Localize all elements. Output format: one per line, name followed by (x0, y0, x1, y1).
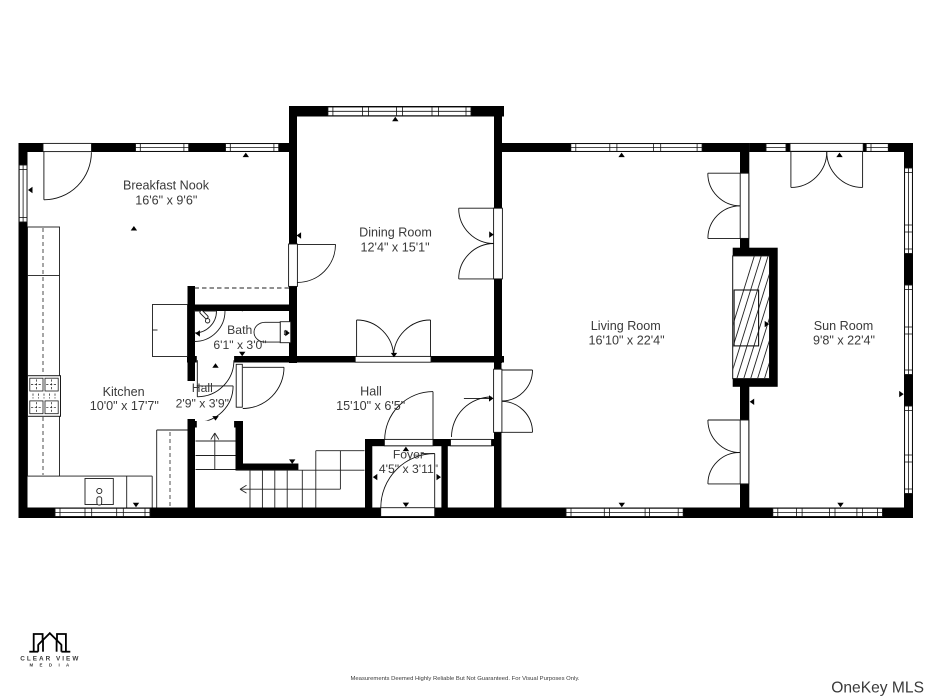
svg-text:Living Room: Living Room (591, 319, 661, 333)
svg-text:Bath: Bath (227, 323, 252, 337)
svg-text:2'9" x 3'9": 2'9" x 3'9" (176, 397, 229, 411)
svg-text:16'10" x 22'4": 16'10" x 22'4" (589, 334, 665, 348)
svg-text:OneKey MLS: OneKey MLS (831, 680, 924, 697)
svg-text:4'5" x 3'11": 4'5" x 3'11" (379, 462, 438, 476)
svg-text:Sun Room: Sun Room (814, 319, 874, 333)
svg-text:15'10" x 6'5": 15'10" x 6'5" (336, 399, 405, 413)
svg-text:Breakfast Nook: Breakfast Nook (123, 179, 210, 193)
svg-text:Dining Room: Dining Room (359, 226, 432, 240)
svg-text:Hall: Hall (360, 385, 382, 399)
svg-text:16'6" x 9'6": 16'6" x 9'6" (135, 194, 197, 208)
svg-text:Kitchen: Kitchen (103, 385, 145, 399)
svg-text:9'8" x 22'4": 9'8" x 22'4" (813, 334, 875, 348)
svg-text:Hall: Hall (192, 381, 213, 395)
svg-text:Foyer: Foyer (393, 447, 424, 461)
svg-text:M E D I A: M E D I A (29, 663, 71, 668)
svg-text:Measurements Deemed Highly Rel: Measurements Deemed Highly Reliable But … (351, 676, 580, 682)
svg-text:12'4" x 15'1": 12'4" x 15'1" (361, 241, 430, 255)
svg-text:10'0" x 17'7": 10'0" x 17'7" (90, 399, 159, 413)
svg-text:6'1" x 3'0": 6'1" x 3'0" (213, 338, 266, 352)
